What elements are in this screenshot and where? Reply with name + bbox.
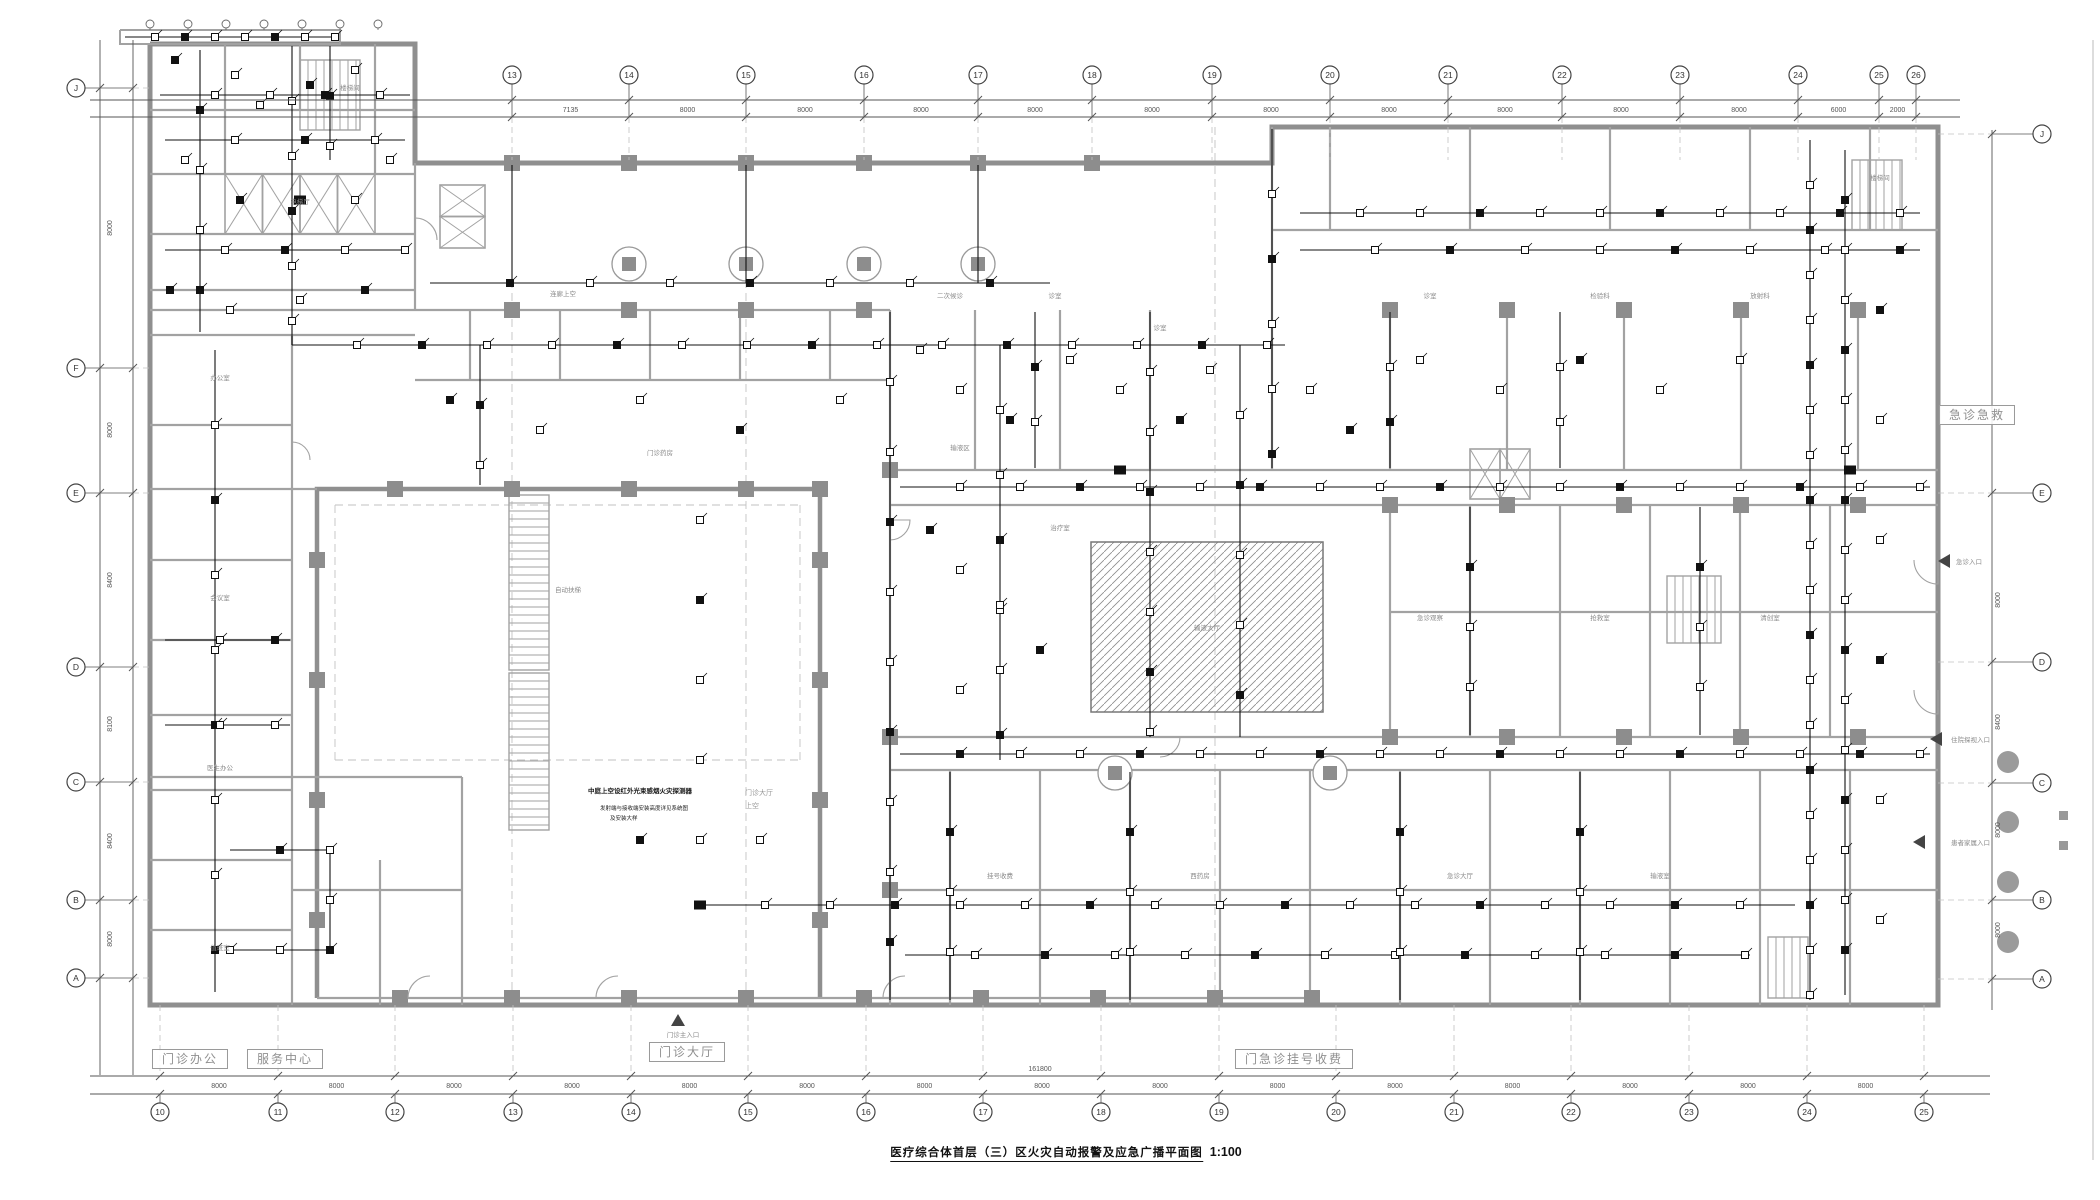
detector-symbol: [1257, 751, 1264, 758]
detector-symbol: [1497, 751, 1504, 758]
detector-symbol: [1697, 684, 1704, 691]
detector-tick: [964, 683, 968, 687]
drawing-title: 医疗综合体首层（三）区火灾自动报警及应急广播平面图1:100: [890, 1143, 1241, 1161]
detector-symbol: [1317, 751, 1324, 758]
drawing-sheet: 1371351480001580001680001780001880001980…: [0, 0, 2100, 1200]
detector-symbol: [1087, 902, 1094, 909]
drawing-text: 8000: [1144, 107, 1160, 114]
detector-tick: [1544, 206, 1548, 210]
detector-symbol: [1067, 357, 1074, 364]
column: [812, 792, 828, 808]
label-service-center: 服务中心: [247, 1049, 323, 1069]
detector-symbol: [197, 287, 204, 294]
detector-tick: [1679, 898, 1683, 902]
column: [1733, 497, 1749, 513]
detector-tick: [1814, 313, 1818, 317]
detector-symbol: [1264, 342, 1271, 349]
detector-symbol: [1807, 902, 1814, 909]
detector-symbol: [1807, 542, 1814, 549]
detector-symbol: [1004, 342, 1011, 349]
detector-tick: [1029, 898, 1033, 902]
detector-tick: [279, 718, 283, 722]
detector-tick: [1749, 948, 1753, 952]
drawing-text: 二次候诊: [937, 291, 964, 300]
detector-tick: [704, 513, 708, 517]
column: [504, 302, 520, 318]
drawing-text: 8000: [1387, 1083, 1403, 1090]
detector-symbol: [917, 347, 924, 354]
detector-symbol: [212, 572, 219, 579]
detector-symbol: [1617, 751, 1624, 758]
detector-symbol: [1347, 902, 1354, 909]
detector-symbol: [272, 722, 279, 729]
detector-tick: [219, 568, 223, 572]
column: [309, 552, 325, 568]
detector-tick: [426, 338, 430, 342]
column: [504, 481, 520, 497]
detector-symbol: [377, 92, 384, 99]
drawing-text: 电梯厅: [290, 197, 310, 206]
detector-tick: [1664, 383, 1668, 387]
label-registration-fees: 门急诊挂号收费: [1235, 1049, 1353, 1069]
detector-symbol: [1737, 751, 1744, 758]
detector-symbol: [1007, 417, 1014, 424]
detector-symbol: [927, 527, 934, 534]
detector-tick: [894, 725, 898, 729]
detector-symbol: [289, 208, 296, 215]
drawing-text: 8000: [1027, 107, 1043, 114]
detector-symbol: [747, 280, 754, 287]
detector-tick: [1276, 252, 1280, 256]
detector-symbol: [212, 34, 219, 41]
detector-symbol: [1897, 247, 1904, 254]
detector-tick: [1814, 358, 1818, 362]
detector-symbol: [997, 407, 1004, 414]
detector-tick: [309, 133, 313, 137]
detector-tick: [1814, 403, 1818, 407]
detector-tick: [704, 753, 708, 757]
detector-tick: [1424, 206, 1428, 210]
door-arc: [1914, 560, 1938, 584]
detector-tick: [1814, 763, 1818, 767]
detector-tick: [1154, 425, 1158, 429]
detector-symbol: [1252, 952, 1259, 959]
detector-tick: [1814, 268, 1818, 272]
detector-symbol: [1807, 272, 1814, 279]
detector-symbol: [1037, 647, 1044, 654]
column: [392, 990, 408, 1006]
detector-symbol: [1877, 917, 1884, 924]
door-arc: [596, 976, 618, 998]
detector-symbol: [957, 751, 964, 758]
detector-symbol: [1497, 387, 1504, 394]
detector-symbol: [272, 637, 279, 644]
drawing-text: 及安装大样: [610, 814, 638, 822]
column: [1207, 990, 1223, 1006]
detector-symbol: [1877, 657, 1884, 664]
drawing-text: 抢救室: [1590, 613, 1610, 622]
detector-tick: [894, 375, 898, 379]
detector-symbol: [1807, 947, 1814, 954]
detector-tick: [1604, 243, 1608, 247]
detector-symbol: [212, 797, 219, 804]
detector-tick: [234, 943, 238, 947]
drawing-text: 8000: [682, 1083, 698, 1090]
detector-symbol: [1522, 247, 1529, 254]
detector-symbol: [1807, 677, 1814, 684]
detector-tick: [1329, 948, 1333, 952]
drawing-text: 18: [1087, 70, 1097, 80]
detector-tick: [964, 480, 968, 484]
detector-tick: [349, 243, 353, 247]
detector-symbol: [217, 722, 224, 729]
detector-symbol: [1597, 210, 1604, 217]
detector-tick: [361, 338, 365, 342]
drawing-text: 8000: [107, 220, 114, 236]
detector-tick: [1004, 403, 1008, 407]
detector-symbol: [1147, 669, 1154, 676]
detector-tick: [1039, 360, 1043, 364]
drawing-text: 21: [1449, 1107, 1459, 1117]
detector-tick: [1884, 413, 1888, 417]
detector-tick: [1119, 948, 1123, 952]
detector-tick: [1289, 898, 1293, 902]
detector-symbol: [1257, 484, 1264, 491]
detector-tick: [1224, 898, 1228, 902]
detector-symbol: [1737, 902, 1744, 909]
detector-tick: [674, 276, 678, 280]
detector-tick: [219, 88, 223, 92]
detector-tick: [1864, 747, 1868, 751]
label-outpatient-office: 门诊办公: [152, 1049, 228, 1069]
detector-tick: [1744, 747, 1748, 751]
detector-tick: [1564, 415, 1568, 419]
drawing-text: 西药房: [1190, 871, 1210, 880]
drawing-text: 自动扶梯: [555, 585, 582, 594]
detector-symbol: [1807, 452, 1814, 459]
detector-tick: [384, 88, 388, 92]
detector-symbol: [887, 869, 894, 876]
drawing-text: 楼梯间: [1870, 173, 1890, 182]
detector-symbol: [947, 829, 954, 836]
detector-tick: [1144, 747, 1148, 751]
detector-symbol: [1857, 484, 1864, 491]
detector-tick: [1384, 480, 1388, 484]
detector-tick: [1849, 493, 1853, 497]
drawing-text: 中庭上空设红外光束感烟火灾探测器: [588, 786, 693, 795]
module-panel: [694, 901, 706, 910]
column: [504, 990, 520, 1006]
detector-symbol: [307, 82, 314, 89]
detector-tick: [1504, 480, 1508, 484]
detector-symbol: [1577, 829, 1584, 836]
detector-tick: [1814, 808, 1818, 812]
drawing-text: 8000: [1263, 107, 1279, 114]
detector-symbol: [232, 72, 239, 79]
column: [387, 481, 403, 497]
detector-tick: [1814, 853, 1818, 857]
floor-plan: 1371351480001580001680001780001880001980…: [0, 0, 2100, 1200]
detector-symbol: [1237, 412, 1244, 419]
detector-tick: [244, 193, 248, 197]
detector-tick: [964, 563, 968, 567]
detector-symbol: [1807, 227, 1814, 234]
column: [621, 990, 637, 1006]
detector-tick: [239, 133, 243, 137]
detector-symbol: [1237, 622, 1244, 629]
drawing-text: 23: [1684, 1107, 1694, 1117]
round-column-core: [622, 257, 636, 271]
detector-tick: [1849, 643, 1853, 647]
detector-symbol: [887, 589, 894, 596]
drawing-text: 21: [1443, 70, 1453, 80]
drawing-text: 8000: [1152, 1083, 1168, 1090]
detector-tick: [1804, 480, 1808, 484]
column: [1090, 990, 1106, 1006]
detector-tick: [1364, 206, 1368, 210]
door-arc: [883, 976, 905, 998]
detector-symbol: [1147, 429, 1154, 436]
detector-symbol: [362, 287, 369, 294]
drawing-text: 急诊大厅: [1447, 871, 1474, 880]
detector-tick: [1884, 653, 1888, 657]
detector-tick: [1354, 898, 1358, 902]
detector-tick: [1784, 206, 1788, 210]
detector-symbol: [1532, 952, 1539, 959]
detector-symbol: [1137, 751, 1144, 758]
detector-tick: [1141, 338, 1145, 342]
detector-tick: [964, 747, 968, 751]
drawing-text: 8100: [107, 716, 114, 732]
drawing-text: E: [73, 488, 79, 498]
drawing-text: 8000: [564, 1083, 580, 1090]
detector-symbol: [1397, 829, 1404, 836]
detector-tick: [1564, 747, 1568, 751]
detector-tick: [1159, 898, 1163, 902]
detector-symbol: [1412, 902, 1419, 909]
detector-symbol: [1742, 952, 1749, 959]
detector-tick: [409, 243, 413, 247]
drawing-text: 8000: [913, 107, 929, 114]
detector-tick: [704, 593, 708, 597]
detector-tick: [1404, 885, 1408, 889]
drawing-text: 8000: [329, 1083, 345, 1090]
detector-tick: [1814, 223, 1818, 227]
detector-symbol: [1537, 210, 1544, 217]
detector-symbol: [887, 729, 894, 736]
column: [1733, 729, 1749, 745]
detector-tick: [1529, 243, 1533, 247]
detector-symbol: [267, 92, 274, 99]
drawing-text: 20: [1325, 70, 1335, 80]
detector-symbol: [1697, 624, 1704, 631]
detector-tick: [899, 898, 903, 902]
detector-tick: [834, 898, 838, 902]
detector-tick: [1454, 243, 1458, 247]
detector-symbol: [387, 157, 394, 164]
stair-outline: [1768, 937, 1808, 998]
detector-tick: [1204, 480, 1208, 484]
detector-symbol: [972, 952, 979, 959]
column: [1499, 497, 1515, 513]
detector-symbol: [1807, 722, 1814, 729]
detector-tick: [1849, 243, 1853, 247]
drawing-text: 22: [1566, 1107, 1576, 1117]
detector-symbol: [549, 342, 556, 349]
detector-symbol: [1127, 829, 1134, 836]
detector-tick: [1124, 383, 1128, 387]
drawing-scale: 1:100: [1210, 1145, 1242, 1159]
detector-tick: [1744, 898, 1748, 902]
drawing-text: 患者家属入口: [1951, 838, 1990, 847]
detector-tick: [1276, 382, 1280, 386]
detector-symbol: [757, 837, 764, 844]
detector-tick: [1014, 413, 1018, 417]
detector-tick: [1024, 747, 1028, 751]
drawing-text: 20: [1331, 1107, 1341, 1117]
drawing-text: 急诊入口: [1956, 557, 1982, 566]
detector-symbol: [1467, 624, 1474, 631]
drawing-text: 8000: [107, 422, 114, 438]
detector-symbol: [697, 837, 704, 844]
detector-symbol: [679, 342, 686, 349]
detector-tick: [1324, 747, 1328, 751]
drawing-text: 8000: [1613, 107, 1629, 114]
detector-symbol: [1237, 552, 1244, 559]
column: [1850, 302, 1866, 318]
drawing-text: 15: [741, 70, 751, 80]
detector-tick: [1154, 365, 1158, 369]
detector-symbol: [1797, 751, 1804, 758]
drawing-text: 8000: [1731, 107, 1747, 114]
mini-grid-bubble: [374, 20, 382, 28]
detector-symbol: [1697, 564, 1704, 571]
drawing-text: E: [2039, 488, 2045, 498]
detector-symbol: [1387, 419, 1394, 426]
drawing-text: 8000: [1270, 1083, 1286, 1090]
detector-symbol: [947, 889, 954, 896]
detector-tick: [1379, 243, 1383, 247]
detector-tick: [1609, 948, 1613, 952]
drawing-text: D: [2039, 657, 2045, 667]
detector-symbol: [197, 167, 204, 174]
canopy-column: [1997, 751, 2019, 773]
drawing-text: C: [2039, 778, 2045, 788]
detector-tick: [1849, 593, 1853, 597]
detector-symbol: [1602, 952, 1609, 959]
detector-tick: [1484, 898, 1488, 902]
detector-symbol: [1557, 419, 1564, 426]
detector-symbol: [1377, 484, 1384, 491]
detector-tick: [1884, 793, 1888, 797]
detector-tick: [296, 314, 300, 318]
detector-symbol: [232, 137, 239, 144]
detector-tick: [1314, 383, 1318, 387]
detector-symbol: [182, 34, 189, 41]
drawing-text: F: [73, 363, 78, 373]
round-column-core: [1108, 766, 1122, 780]
detector-symbol: [1807, 812, 1814, 819]
column: [309, 672, 325, 688]
drawing-text: 11: [274, 1107, 283, 1117]
mini-grid-bubble: [336, 20, 344, 28]
drawing-text: A: [73, 973, 79, 983]
detector-tick: [1664, 206, 1668, 210]
detector-tick: [1849, 693, 1853, 697]
detector-symbol: [1269, 451, 1276, 458]
drawing-text: 发射端与接收端安装高度详见系统图: [600, 804, 689, 812]
detector-tick: [279, 633, 283, 637]
detector-symbol: [1807, 587, 1814, 594]
detector-symbol: [637, 837, 644, 844]
module-panel: [1114, 466, 1126, 475]
detector-symbol: [447, 397, 454, 404]
detector-symbol: [1032, 419, 1039, 426]
detector-tick: [881, 338, 885, 342]
drawing-text: 8000: [211, 1083, 227, 1090]
detector-tick: [1884, 533, 1888, 537]
detector-symbol: [277, 947, 284, 954]
detector-symbol: [1607, 902, 1614, 909]
detector-symbol: [997, 667, 1004, 674]
detector-symbol: [1737, 357, 1744, 364]
detector-symbol: [1042, 952, 1049, 959]
detector-symbol: [667, 280, 674, 287]
detector-tick: [1204, 747, 1208, 751]
drawing-text: 19: [1214, 1107, 1224, 1117]
drawing-text: D: [73, 662, 79, 672]
drawing-text: 8000: [1740, 1083, 1756, 1090]
detector-tick: [189, 153, 193, 157]
detector-tick: [1814, 673, 1818, 677]
drawing-text: 门诊药房: [647, 448, 673, 457]
detector-symbol: [297, 297, 304, 304]
detector-tick: [1094, 898, 1098, 902]
detector-tick: [1384, 747, 1388, 751]
detector-symbol: [1577, 357, 1584, 364]
drawing-text: 8000: [446, 1083, 462, 1090]
drawing-text: 13: [508, 1107, 518, 1117]
drawing-text: 8000: [680, 107, 696, 114]
detector-tick: [219, 493, 223, 497]
drawing-text: 输液大厅: [1194, 623, 1221, 632]
detector-symbol: [1672, 247, 1679, 254]
detector-symbol: [939, 342, 946, 349]
drawing-text: 8000: [1995, 922, 2002, 938]
detector-symbol: [182, 157, 189, 164]
detector-symbol: [1842, 947, 1849, 954]
detector-symbol: [1269, 191, 1276, 198]
detector-symbol: [1577, 949, 1584, 956]
detector-tick: [1564, 480, 1568, 484]
misc-symbol: [2059, 841, 2068, 850]
column: [1850, 497, 1866, 513]
detector-tick: [1504, 747, 1508, 751]
drawing-text: 2000: [1890, 107, 1906, 114]
detector-symbol: [1134, 342, 1141, 349]
detector-symbol: [1307, 387, 1314, 394]
drawing-text: 8400: [1995, 714, 2002, 730]
detector-tick: [1259, 948, 1263, 952]
detector-tick: [816, 338, 820, 342]
drawing-text: 12: [390, 1107, 400, 1117]
drawing-text: 22: [1557, 70, 1567, 80]
detector-symbol: [1842, 347, 1849, 354]
detector-symbol: [1842, 697, 1849, 704]
detector-tick: [1474, 560, 1478, 564]
detector-symbol: [1717, 210, 1724, 217]
detector-symbol: [1747, 247, 1754, 254]
